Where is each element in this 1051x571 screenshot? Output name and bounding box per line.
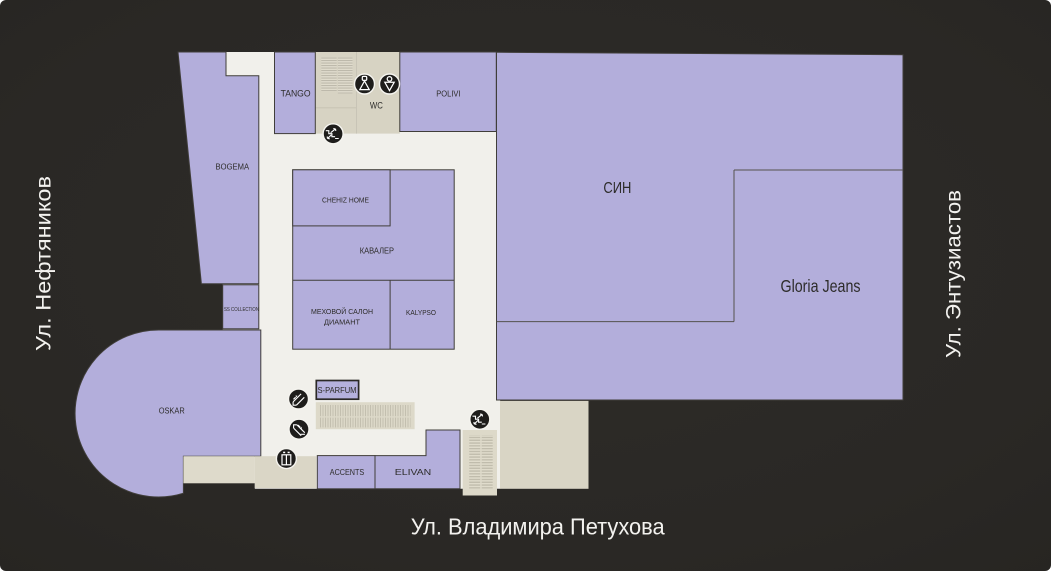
- svg-text:SS COLLECTION: SS COLLECTION: [224, 307, 259, 313]
- svg-text:Gloria Jeans: Gloria Jeans: [781, 276, 861, 296]
- svg-text:OSKAR: OSKAR: [159, 406, 185, 416]
- svg-text:CHEHIZ HOME: CHEHIZ HOME: [322, 196, 369, 205]
- svg-text:S-PARFUM: S-PARFUM: [318, 385, 357, 395]
- svg-text:МЕХОВОЙ САЛОН: МЕХОВОЙ САЛОН: [311, 307, 373, 316]
- svg-text:POLIVI: POLIVI: [436, 88, 460, 98]
- svg-text:Ул. Владимира Петухова: Ул. Владимира Петухова: [411, 514, 665, 540]
- svg-text:BOGEMA: BOGEMA: [216, 161, 250, 171]
- svg-text:ДИАМАНТ: ДИАМАНТ: [324, 318, 360, 327]
- svg-text:СИН: СИН: [603, 180, 631, 197]
- svg-text:ELIVAN: ELIVAN: [395, 467, 432, 477]
- svg-text:KALYPSO: KALYPSO: [406, 308, 436, 317]
- svg-text:WC: WC: [370, 101, 383, 111]
- svg-text:ACCENTS: ACCENTS: [330, 467, 365, 477]
- svg-text:Ул. Энтузиастов: Ул. Энтузиастов: [942, 190, 966, 358]
- svg-text:КАВАЛЕР: КАВАЛЕР: [360, 246, 394, 256]
- svg-text:TANGO: TANGO: [281, 88, 311, 99]
- svg-text:Ул. Нефтяников: Ул. Нефтяников: [32, 176, 56, 351]
